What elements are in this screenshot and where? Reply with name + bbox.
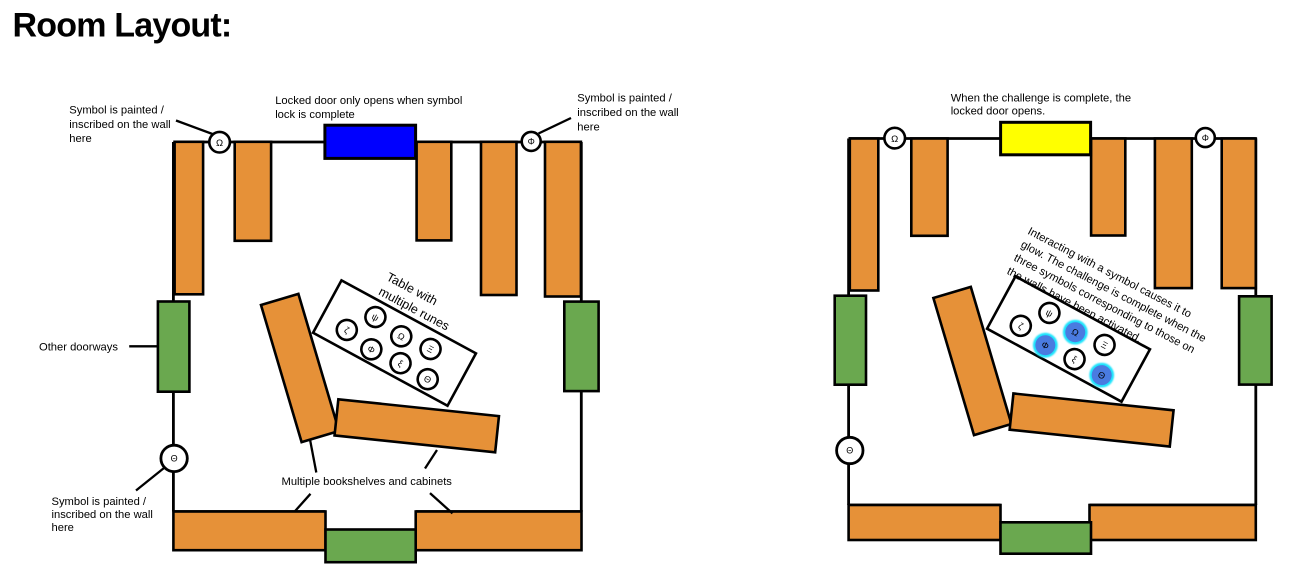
svg-text:Symbol is painted /: Symbol is painted / [52,496,147,508]
svg-text:Θ: Θ [171,454,178,464]
svg-text:When the challenge is complete: When the challenge is complete, the [951,92,1131,104]
svg-text:Φ: Φ [1202,133,1209,143]
svg-text:inscribed on the wall: inscribed on the wall [577,107,678,119]
svg-text:Ω: Ω [216,138,223,149]
svg-text:Room Layout:: Room Layout: [13,7,232,45]
svg-text:here: here [69,133,91,145]
svg-text:lock is complete: lock is complete [275,109,355,121]
svg-text:Θ: Θ [846,446,853,456]
svg-text:Φ: Φ [528,137,535,147]
svg-text:Symbol is painted /: Symbol is painted / [69,105,164,117]
svg-text:Symbol is painted /: Symbol is painted / [577,92,672,104]
svg-text:here: here [52,522,74,534]
svg-text:Locked door only opens when sy: Locked door only opens when symbol [275,95,462,107]
svg-text:Multiple bookshelves and cabin: Multiple bookshelves and cabinets [282,476,453,488]
svg-text:inscribed on the wall: inscribed on the wall [52,509,153,521]
svg-text:Ω: Ω [891,134,898,145]
svg-text:here: here [577,121,599,133]
svg-text:inscribed on the wall: inscribed on the wall [69,119,170,131]
svg-text:Other doorways: Other doorways [39,341,118,353]
svg-text:locked door opens.: locked door opens. [951,106,1046,118]
